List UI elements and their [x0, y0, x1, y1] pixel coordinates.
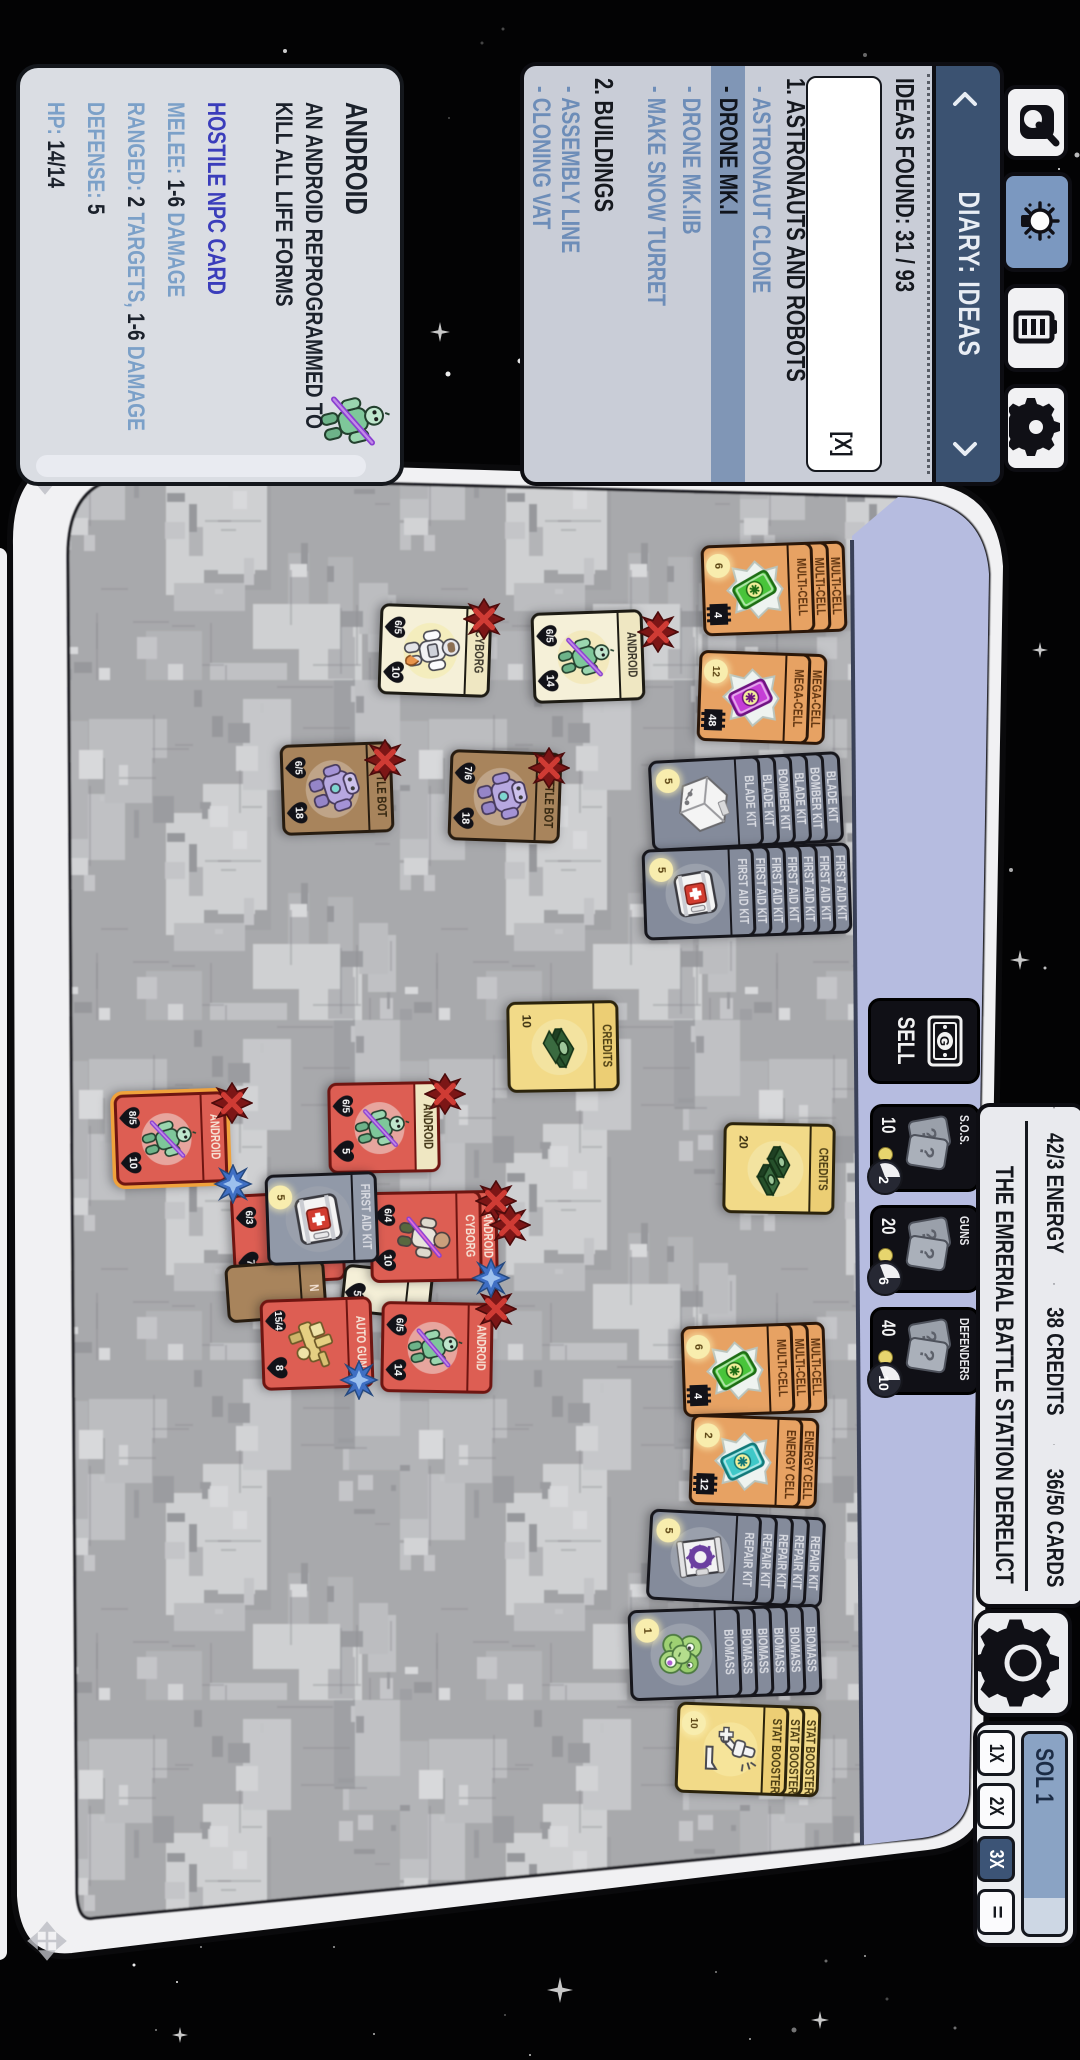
svg-text:12: 12 — [697, 1478, 709, 1491]
svg-text:G: G — [937, 1036, 952, 1046]
svg-text:48: 48 — [705, 714, 717, 727]
